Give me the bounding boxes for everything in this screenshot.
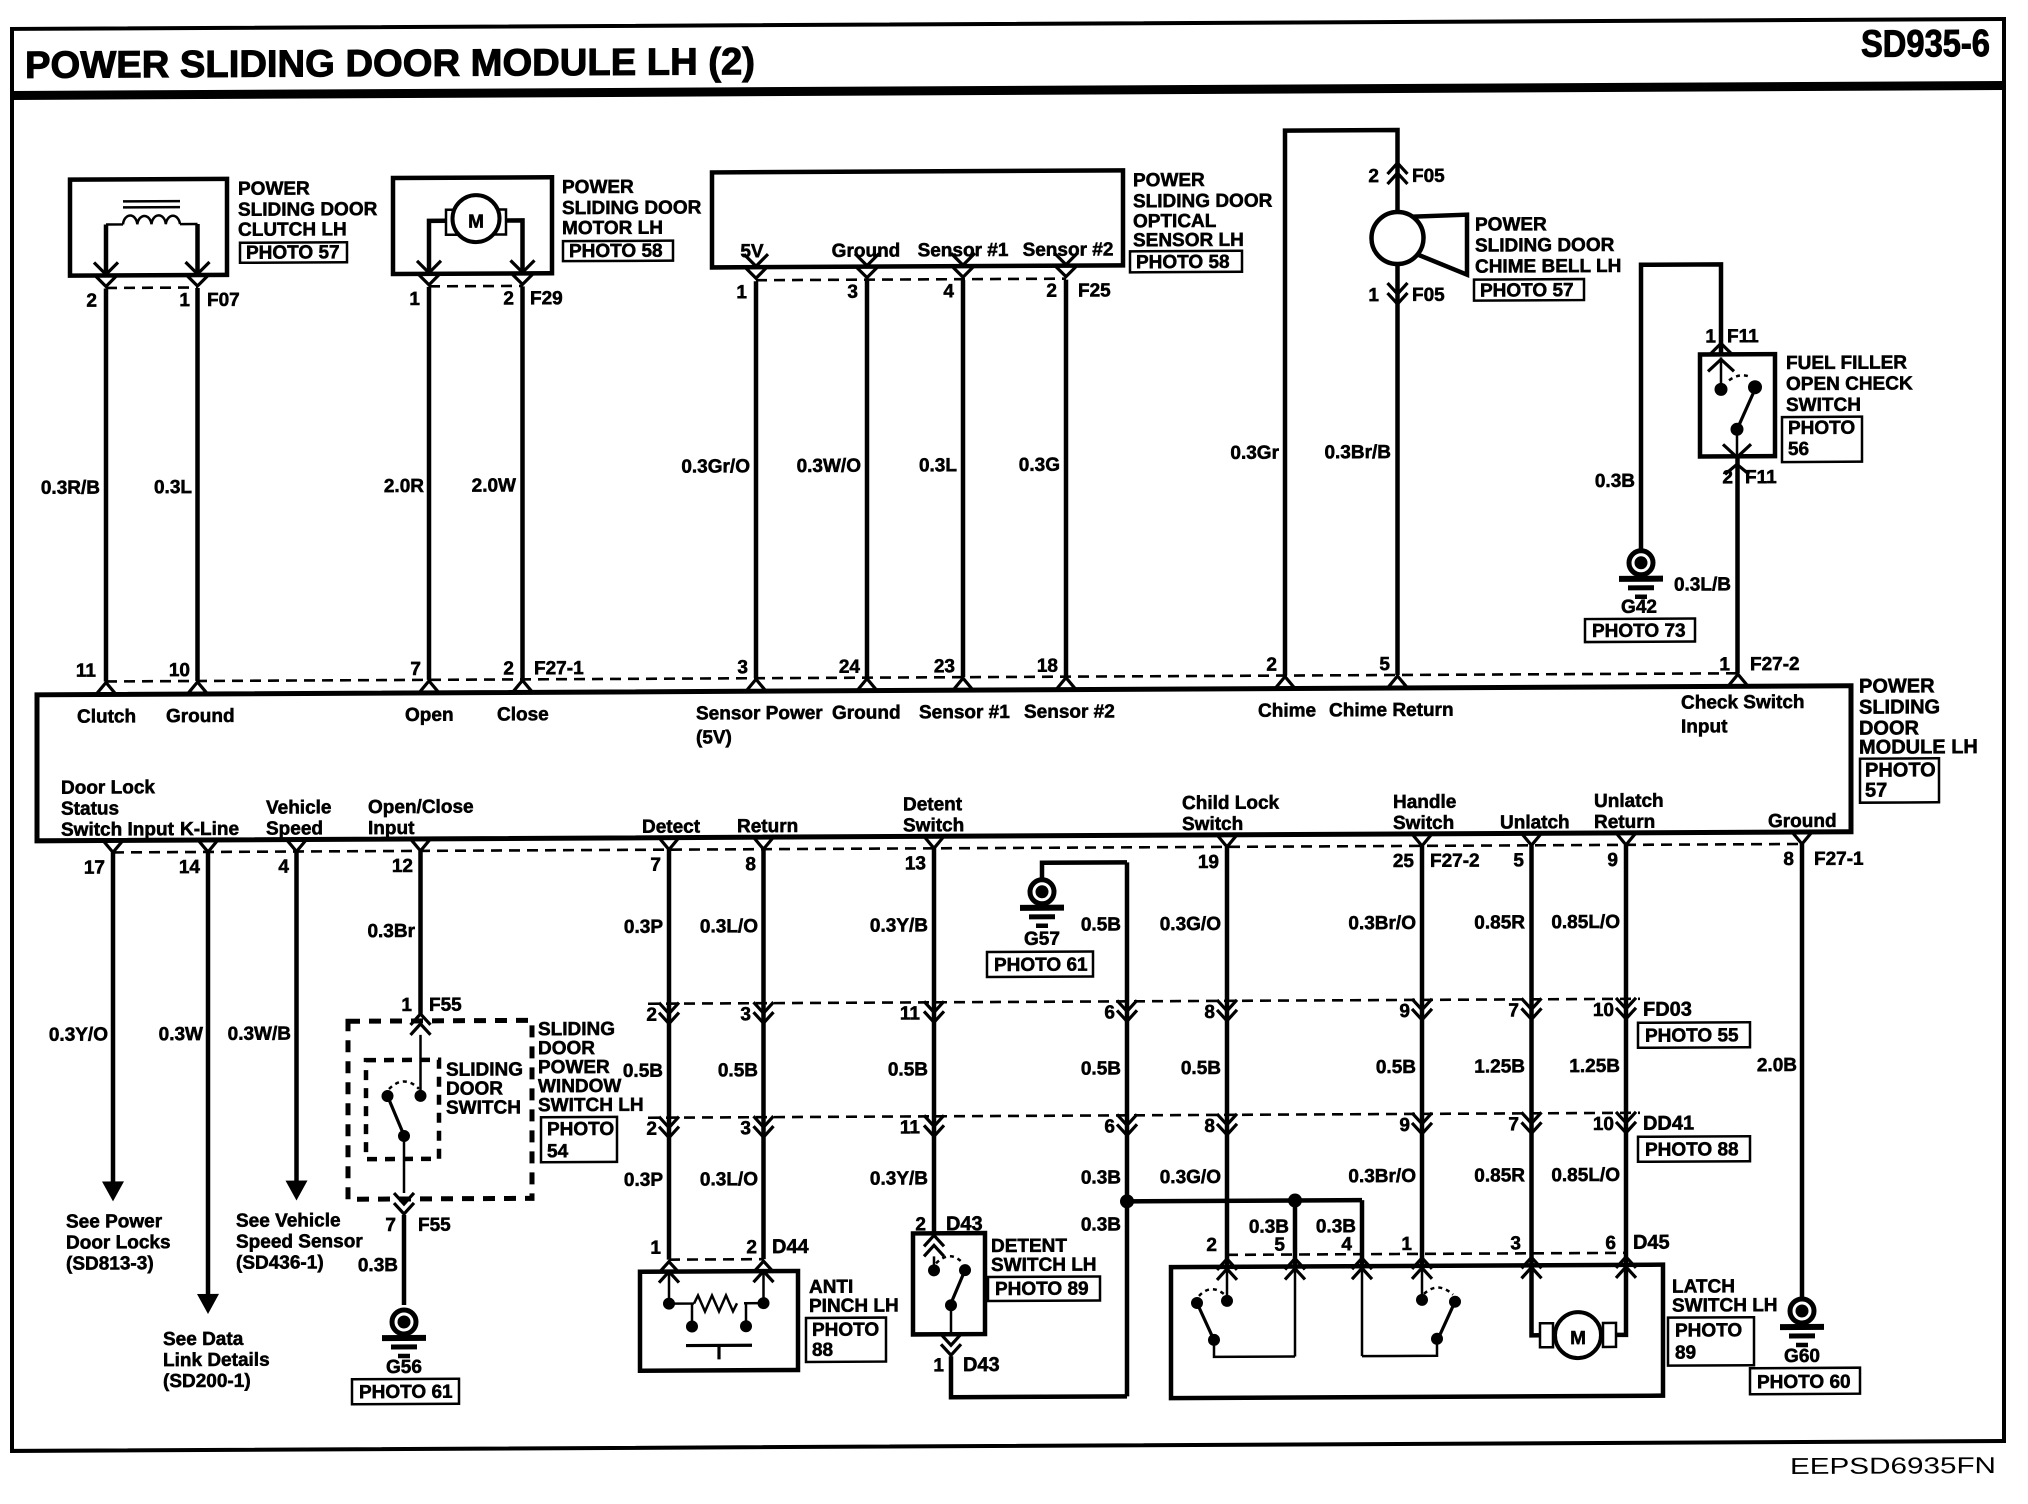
svg-text:G56: G56 (386, 1357, 422, 1378)
svg-text:0.5B: 0.5B (888, 1059, 928, 1080)
svg-text:Sensor Power: Sensor Power (696, 703, 823, 725)
svg-text:1.25B: 1.25B (1569, 1056, 1620, 1077)
svg-text:0.85R: 0.85R (1474, 1165, 1525, 1186)
svg-text:2: 2 (646, 1119, 657, 1140)
svg-text:F11: F11 (1727, 326, 1759, 347)
svg-text:0.3Y/B: 0.3Y/B (870, 1168, 928, 1189)
svg-text:ANTI: ANTI (809, 1277, 853, 1298)
svg-text:SWITCH LH: SWITCH LH (538, 1095, 644, 1117)
svg-text:0.5B: 0.5B (1081, 1058, 1121, 1079)
svg-text:Sensor #1: Sensor #1 (919, 702, 1010, 723)
svg-text:0.5B: 0.5B (718, 1060, 758, 1081)
svg-text:POWER SLIDING DOOR MODULE LH (: POWER SLIDING DOOR MODULE LH (2) (25, 41, 755, 87)
svg-text:SLIDING: SLIDING (446, 1059, 523, 1080)
svg-text:F55: F55 (429, 995, 462, 1016)
svg-text:Door Lock: Door Lock (61, 777, 155, 798)
svg-text:8: 8 (1783, 849, 1794, 870)
svg-text:PHOTO: PHOTO (1788, 418, 1855, 439)
svg-text:0.3W/B: 0.3W/B (228, 1024, 291, 1045)
svg-text:0.3Br/O: 0.3Br/O (1348, 1166, 1416, 1187)
svg-text:2: 2 (1266, 655, 1277, 676)
svg-text:DD41: DD41 (1643, 1113, 1694, 1135)
svg-text:0.85L/O: 0.85L/O (1551, 1165, 1620, 1186)
svg-text:G57: G57 (1024, 929, 1060, 950)
svg-text:F05: F05 (1412, 166, 1445, 187)
svg-text:PHOTO 57: PHOTO 57 (1480, 280, 1574, 301)
svg-text:0.3B: 0.3B (1081, 1214, 1121, 1235)
svg-text:7: 7 (385, 1215, 396, 1236)
svg-text:7: 7 (1508, 1114, 1519, 1135)
svg-text:8: 8 (745, 854, 756, 875)
svg-text:4: 4 (943, 281, 954, 302)
svg-text:SLIDING DOOR: SLIDING DOOR (1475, 235, 1615, 257)
svg-text:19: 19 (1198, 852, 1219, 873)
svg-text:SLIDING: SLIDING (538, 1019, 615, 1040)
svg-text:SLIDING DOOR: SLIDING DOOR (1133, 191, 1273, 213)
svg-text:89: 89 (1675, 1343, 1696, 1364)
svg-text:Sensor #2: Sensor #2 (1024, 701, 1115, 722)
svg-text:See Power: See Power (66, 1211, 163, 1232)
svg-text:4: 4 (1341, 1234, 1352, 1255)
svg-text:Return: Return (1594, 812, 1655, 833)
svg-text:0.3B: 0.3B (1081, 1167, 1121, 1188)
svg-text:2: 2 (86, 291, 97, 312)
svg-text:4: 4 (278, 857, 289, 878)
svg-text:Door Locks: Door Locks (66, 1232, 171, 1254)
svg-text:SWITCH LH: SWITCH LH (991, 1255, 1097, 1277)
svg-text:1: 1 (409, 289, 420, 310)
svg-text:17: 17 (84, 857, 105, 878)
svg-text:Handle: Handle (1393, 792, 1456, 813)
svg-text:Input: Input (1681, 716, 1728, 737)
svg-text:F11: F11 (1745, 467, 1777, 488)
svg-text:SLIDING: SLIDING (1859, 696, 1940, 718)
svg-text:G60: G60 (1784, 1346, 1820, 1367)
svg-text:Open/Close: Open/Close (368, 797, 474, 819)
svg-text:1: 1 (1401, 1234, 1412, 1255)
svg-text:POWER: POWER (1475, 214, 1547, 235)
svg-text:M: M (468, 212, 484, 233)
svg-text:0.5B: 0.5B (1181, 1058, 1221, 1079)
svg-text:0.3Gr/O: 0.3Gr/O (681, 456, 750, 477)
svg-text:Detect: Detect (642, 816, 701, 837)
svg-text:PHOTO 57: PHOTO 57 (246, 242, 340, 263)
svg-text:F27-1: F27-1 (534, 658, 584, 679)
svg-text:PHOTO 58: PHOTO 58 (1136, 252, 1230, 273)
svg-text:8: 8 (1204, 1002, 1215, 1023)
svg-text:13: 13 (905, 853, 926, 874)
svg-text:5: 5 (1274, 1235, 1285, 1256)
svg-text:0.3G: 0.3G (1019, 455, 1060, 476)
svg-text:MODULE LH: MODULE LH (1859, 736, 1978, 759)
svg-text:0.3W/O: 0.3W/O (797, 456, 861, 477)
svg-text:Unlatch: Unlatch (1594, 791, 1664, 812)
svg-text:PHOTO 55: PHOTO 55 (1645, 1025, 1739, 1046)
svg-text:F55: F55 (418, 1215, 451, 1236)
svg-text:2: 2 (503, 288, 514, 309)
svg-text:Chime Return: Chime Return (1329, 700, 1454, 722)
svg-text:F27-1: F27-1 (1814, 849, 1864, 870)
svg-text:0.3L: 0.3L (919, 455, 957, 476)
svg-text:PHOTO 60: PHOTO 60 (1757, 1372, 1851, 1393)
svg-text:SWITCH LH: SWITCH LH (1672, 1295, 1778, 1317)
svg-text:CLUTCH LH: CLUTCH LH (238, 219, 347, 241)
svg-text:0.3G/O: 0.3G/O (1160, 1167, 1221, 1188)
svg-text:1.25B: 1.25B (1474, 1056, 1525, 1077)
svg-text:See Data: See Data (163, 1329, 244, 1350)
svg-text:POWER: POWER (238, 178, 310, 199)
svg-text:3: 3 (740, 1118, 751, 1139)
svg-text:3: 3 (847, 282, 858, 303)
svg-text:CHIME BELL LH: CHIME BELL LH (1475, 256, 1621, 278)
svg-text:9: 9 (1399, 1001, 1410, 1022)
svg-text:0.3Br: 0.3Br (367, 921, 415, 942)
svg-text:Ground: Ground (166, 706, 235, 727)
svg-text:0.3P: 0.3P (624, 1170, 663, 1191)
svg-text:(5V): (5V) (696, 727, 732, 748)
svg-text:0.3Y/B: 0.3Y/B (870, 915, 928, 936)
svg-text:11: 11 (76, 661, 97, 682)
svg-text:Sensor #2: Sensor #2 (1023, 239, 1114, 260)
svg-text:G42: G42 (1621, 597, 1657, 618)
svg-text:7: 7 (410, 659, 421, 680)
svg-text:5: 5 (1513, 850, 1524, 871)
svg-text:POWER: POWER (562, 177, 634, 198)
svg-text:FD03: FD03 (1643, 999, 1692, 1021)
svg-text:0.3Y/O: 0.3Y/O (49, 1024, 108, 1045)
svg-text:SLIDING DOOR: SLIDING DOOR (562, 197, 702, 219)
svg-text:Speed: Speed (266, 818, 323, 839)
svg-text:(SD436-1): (SD436-1) (236, 1252, 324, 1273)
svg-text:0.3G/O: 0.3G/O (1160, 914, 1221, 935)
svg-text:Check Switch: Check Switch (1681, 692, 1805, 714)
svg-text:7: 7 (1508, 1000, 1519, 1021)
svg-text:3: 3 (1510, 1233, 1521, 1254)
svg-text:PHOTO: PHOTO (812, 1320, 879, 1341)
svg-text:Switch: Switch (903, 815, 964, 836)
svg-text:1: 1 (401, 995, 412, 1016)
svg-text:2: 2 (746, 1237, 757, 1258)
svg-text:Status: Status (61, 798, 119, 819)
svg-text:PHOTO: PHOTO (1865, 759, 1936, 781)
svg-text:MOTOR LH: MOTOR LH (562, 218, 663, 240)
svg-text:23: 23 (934, 656, 955, 677)
svg-text:1: 1 (650, 1238, 661, 1259)
svg-text:Switch Input: Switch Input (61, 819, 175, 841)
svg-text:2: 2 (1722, 467, 1733, 488)
svg-text:25: 25 (1393, 851, 1415, 872)
svg-text:F25: F25 (1078, 280, 1111, 301)
svg-text:(SD200-1): (SD200-1) (163, 1371, 251, 1392)
svg-text:0.85R: 0.85R (1474, 912, 1525, 933)
svg-text:D45: D45 (1633, 1232, 1670, 1254)
svg-text:M: M (1570, 1328, 1586, 1349)
svg-text:18: 18 (1037, 656, 1058, 677)
svg-text:Input: Input (368, 818, 415, 839)
svg-text:PHOTO: PHOTO (1675, 1320, 1742, 1341)
svg-text:9: 9 (1399, 1115, 1410, 1136)
svg-text:0.5B: 0.5B (1376, 1057, 1416, 1078)
svg-text:F27-2: F27-2 (1430, 851, 1480, 872)
svg-text:0.3L/O: 0.3L/O (700, 1169, 758, 1190)
svg-text:Chime: Chime (1258, 700, 1316, 721)
svg-text:14: 14 (179, 857, 201, 878)
svg-text:Close: Close (497, 704, 549, 725)
svg-text:1: 1 (933, 1355, 944, 1376)
svg-text:Child Lock: Child Lock (1182, 793, 1280, 814)
svg-text:SWITCH: SWITCH (446, 1097, 521, 1118)
svg-text:PHOTO 88: PHOTO 88 (1645, 1139, 1739, 1160)
svg-text:Sensor #1: Sensor #1 (918, 240, 1009, 261)
svg-text:2.0W: 2.0W (472, 475, 516, 496)
svg-text:3: 3 (737, 657, 748, 678)
svg-text:SWITCH: SWITCH (1786, 395, 1861, 416)
svg-text:0.3Gr: 0.3Gr (1230, 443, 1279, 464)
svg-text:24: 24 (839, 657, 861, 678)
svg-text:2: 2 (1368, 166, 1379, 187)
svg-text:5V: 5V (740, 241, 764, 262)
svg-text:Speed Sensor: Speed Sensor (236, 1231, 363, 1253)
svg-text:Unlatch: Unlatch (1500, 812, 1570, 833)
svg-text:Vehicle: Vehicle (266, 797, 331, 818)
svg-text:10: 10 (1593, 1114, 1614, 1135)
svg-text:(SD813-3): (SD813-3) (66, 1253, 154, 1274)
svg-text:Open: Open (405, 705, 454, 726)
svg-text:2: 2 (503, 658, 514, 679)
svg-text:54: 54 (547, 1141, 569, 1162)
svg-text:6: 6 (1104, 1002, 1115, 1023)
svg-text:0.3P: 0.3P (624, 917, 663, 938)
svg-text:1: 1 (736, 282, 747, 303)
svg-text:PHOTO 73: PHOTO 73 (1592, 621, 1686, 642)
svg-text:8: 8 (1204, 1116, 1215, 1137)
svg-text:2.0R: 2.0R (384, 476, 424, 497)
svg-text:POWER: POWER (1133, 170, 1205, 191)
svg-text:0.3B: 0.3B (1595, 471, 1635, 492)
svg-text:1: 1 (179, 290, 190, 311)
svg-text:2.0B: 2.0B (1757, 1055, 1797, 1076)
svg-text:PHOTO 61: PHOTO 61 (359, 1382, 453, 1403)
svg-text:Return: Return (737, 816, 798, 837)
svg-text:PHOTO: PHOTO (547, 1119, 614, 1140)
svg-text:1: 1 (1368, 285, 1379, 306)
svg-text:0.3W: 0.3W (159, 1024, 203, 1045)
svg-text:Link Details: Link Details (163, 1350, 270, 1372)
svg-text:11: 11 (900, 1003, 921, 1024)
svg-text:See Vehicle: See Vehicle (236, 1210, 341, 1232)
svg-text:0.85L/O: 0.85L/O (1551, 912, 1620, 933)
svg-text:0.3L/O: 0.3L/O (700, 916, 758, 937)
svg-text:K-Line: K-Line (180, 819, 239, 840)
svg-text:6: 6 (1605, 1233, 1616, 1254)
svg-text:2: 2 (1046, 281, 1057, 302)
svg-text:PHOTO 61: PHOTO 61 (994, 955, 1088, 976)
svg-text:FUEL FILLER: FUEL FILLER (1786, 352, 1907, 374)
svg-text:Ground: Ground (1768, 811, 1837, 832)
svg-text:3: 3 (740, 1004, 751, 1025)
svg-text:PINCH LH: PINCH LH (809, 1295, 899, 1316)
svg-text:Clutch: Clutch (77, 706, 136, 727)
svg-text:0.5B: 0.5B (623, 1061, 663, 1082)
svg-text:0.3Br/B: 0.3Br/B (1324, 442, 1391, 463)
svg-text:57: 57 (1865, 780, 1887, 802)
svg-text:0.3R/B: 0.3R/B (41, 477, 100, 498)
svg-text:D43: D43 (963, 1354, 1000, 1376)
svg-text:Switch: Switch (1182, 814, 1243, 835)
svg-text:0.3L: 0.3L (154, 477, 192, 498)
svg-text:12: 12 (392, 856, 413, 877)
svg-text:PHOTO 89: PHOTO 89 (995, 1279, 1089, 1300)
svg-text:5: 5 (1379, 654, 1390, 675)
svg-text:F29: F29 (530, 288, 563, 309)
svg-text:1: 1 (1705, 326, 1716, 347)
svg-text:Ground: Ground (832, 240, 901, 261)
svg-text:Detent: Detent (903, 794, 963, 815)
svg-text:PHOTO 58: PHOTO 58 (569, 241, 663, 262)
svg-text:88: 88 (812, 1340, 833, 1361)
svg-text:6: 6 (1104, 1116, 1115, 1137)
svg-text:11: 11 (900, 1117, 921, 1138)
svg-text:10: 10 (1593, 1000, 1614, 1021)
svg-text:F07: F07 (207, 290, 240, 311)
svg-text:10: 10 (169, 660, 190, 681)
svg-text:0.5B: 0.5B (1081, 914, 1121, 935)
svg-text:F27-2: F27-2 (1750, 654, 1800, 675)
svg-text:EEPSD6935FN: EEPSD6935FN (1790, 1452, 1996, 1479)
svg-text:OPEN CHECK: OPEN CHECK (1786, 373, 1913, 395)
svg-text:7: 7 (650, 855, 661, 876)
svg-text:SENSOR LH: SENSOR LH (1133, 230, 1244, 252)
svg-text:2: 2 (646, 1005, 657, 1026)
svg-text:0.3Br/O: 0.3Br/O (1348, 913, 1416, 934)
svg-text:Ground: Ground (832, 702, 901, 723)
svg-text:0.3B: 0.3B (358, 1255, 398, 1276)
svg-text:2: 2 (1206, 1235, 1217, 1256)
svg-text:POWER: POWER (1859, 675, 1935, 697)
svg-text:9: 9 (1607, 850, 1618, 871)
svg-text:SD935-6: SD935-6 (1861, 23, 1990, 66)
svg-text:56: 56 (1788, 439, 1809, 460)
svg-text:Switch: Switch (1393, 813, 1454, 834)
svg-text:0.3L/B: 0.3L/B (1674, 574, 1731, 595)
svg-text:SLIDING DOOR: SLIDING DOOR (238, 199, 378, 221)
svg-text:D44: D44 (772, 1236, 810, 1258)
svg-text:F05: F05 (1412, 285, 1445, 306)
